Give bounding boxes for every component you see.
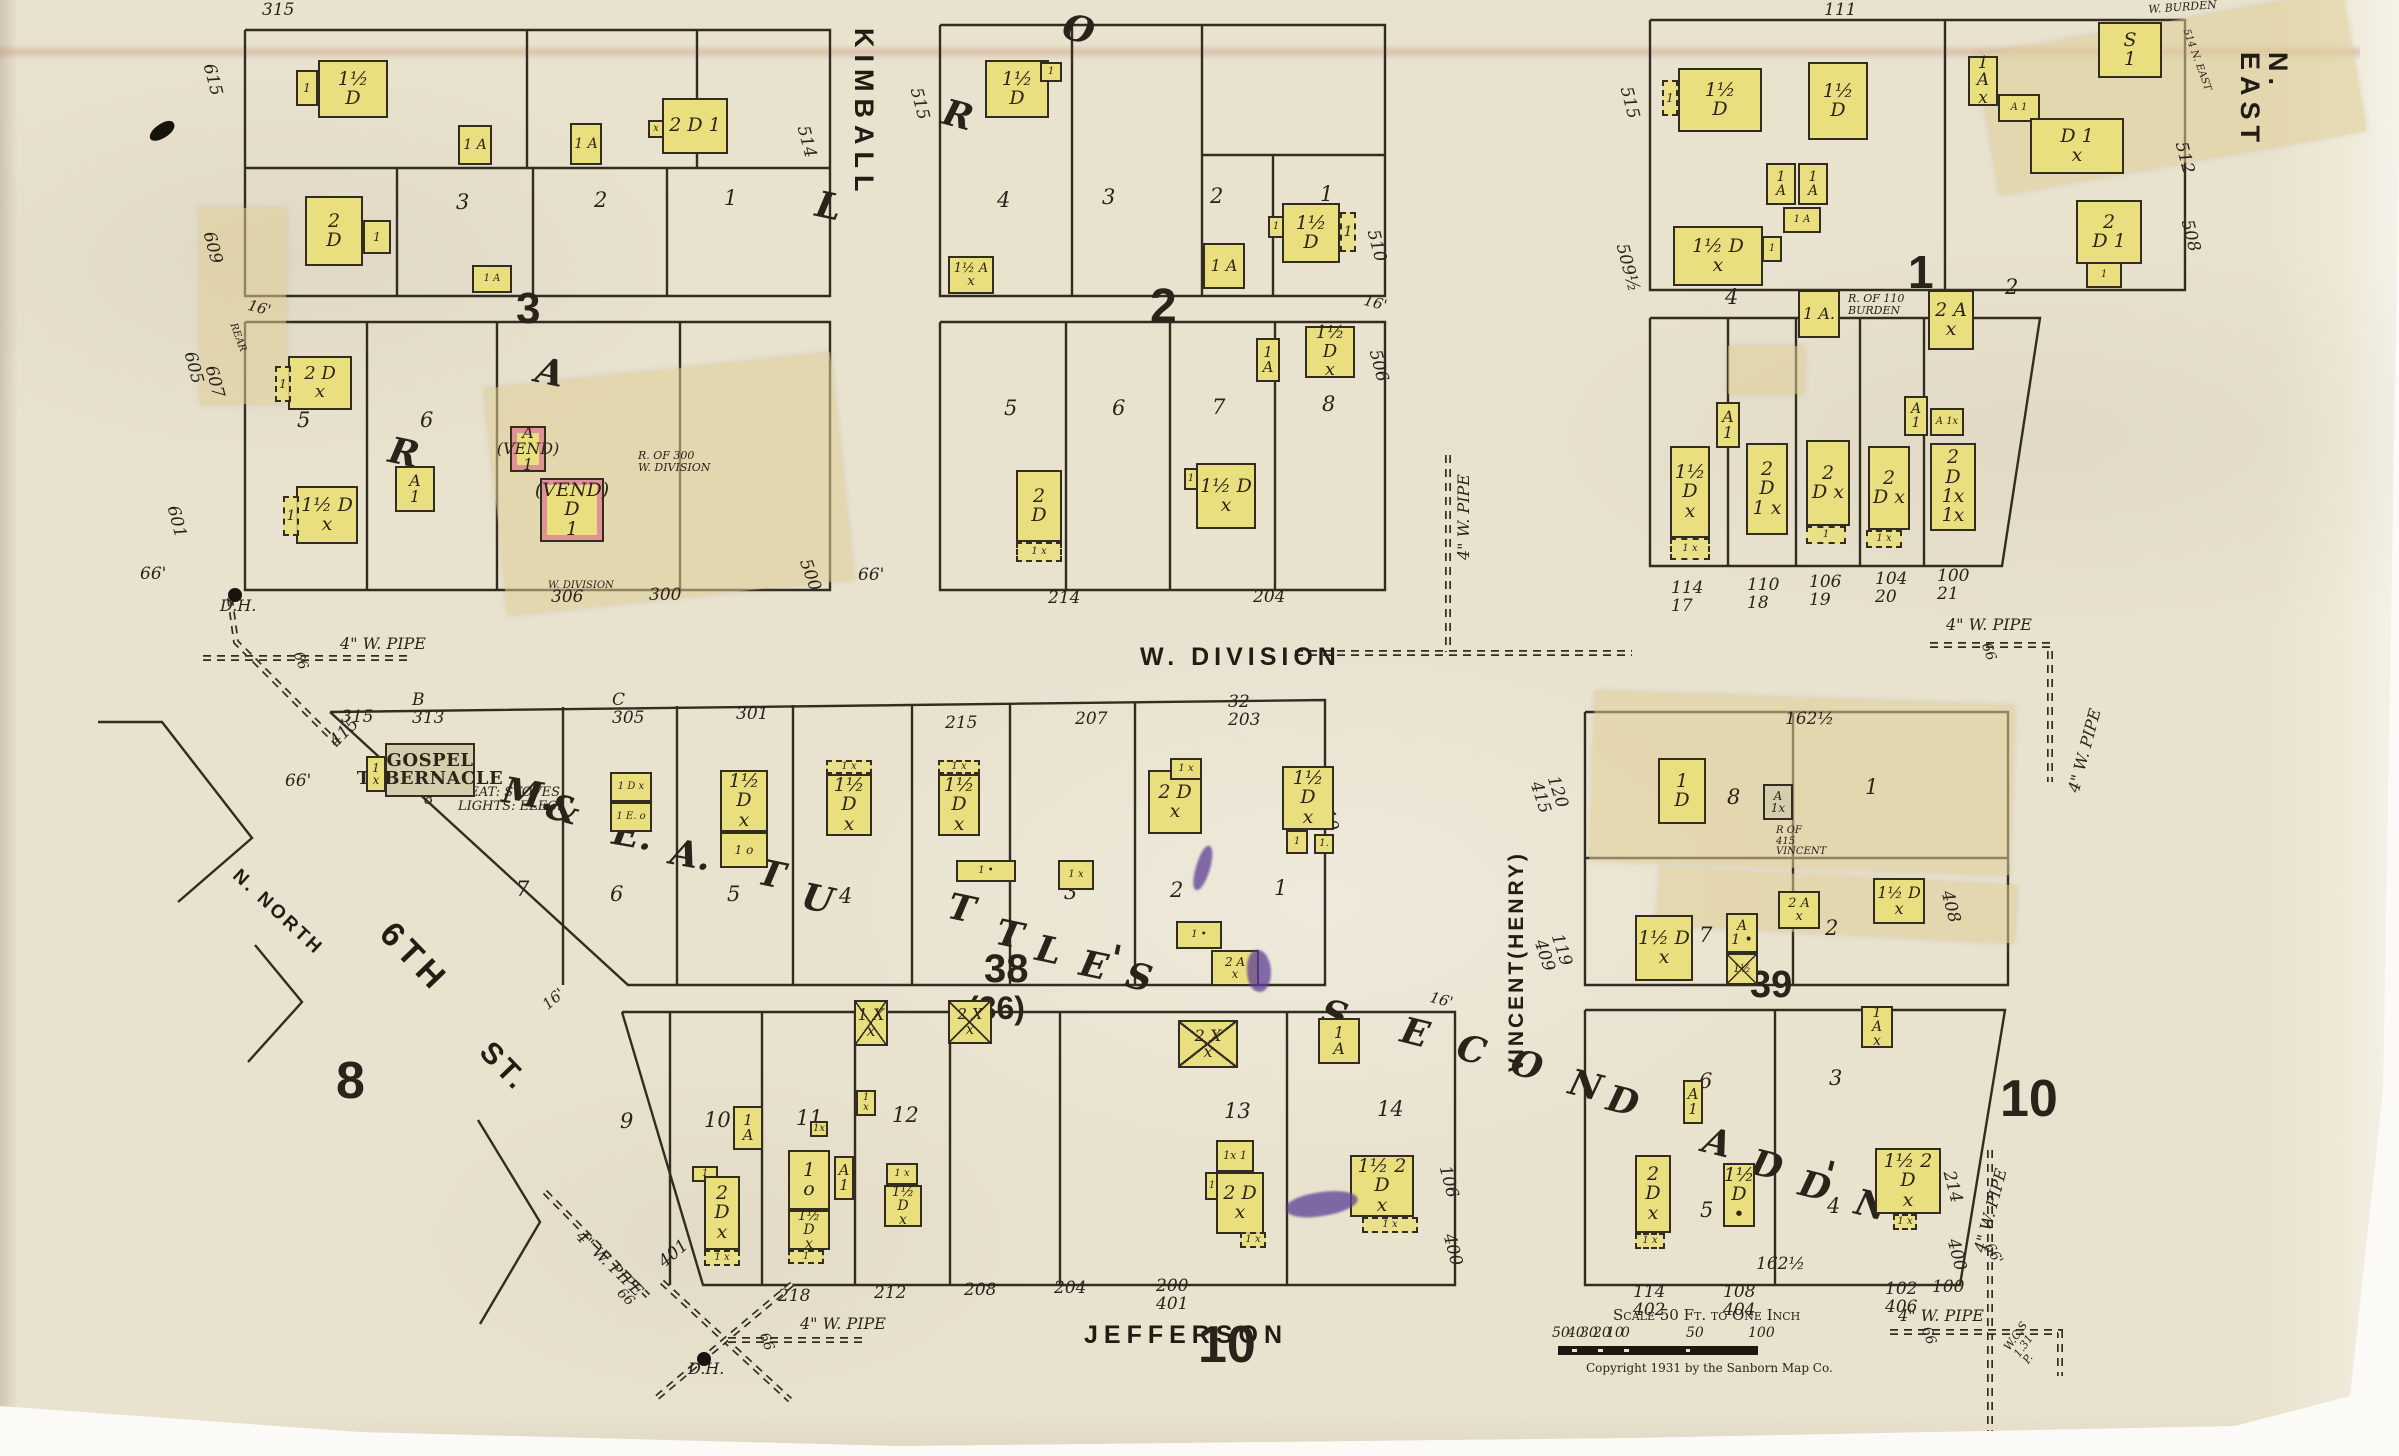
building-footprint: A 1 <box>834 1156 854 1200</box>
lot-number: 4 <box>1827 1195 1840 1217</box>
lot-number: 6 <box>420 409 433 431</box>
scale-bar-tick: 0 <box>1621 1326 1630 1341</box>
lot-number: 8 <box>1322 393 1335 415</box>
water-pipe-line <box>230 598 340 746</box>
address-label: 218 <box>778 1288 810 1306</box>
building-footprint: A 1 • <box>1726 913 1758 953</box>
block-number: 38 <box>984 948 1029 990</box>
building-footprint: 1 o <box>788 1150 830 1210</box>
building-footprint: 1 A x <box>1861 1006 1893 1048</box>
block-number: 10 <box>1198 1318 1256 1373</box>
address-label: 32 203 <box>1228 694 1260 730</box>
address-label: 215 <box>945 715 977 733</box>
lot-number: 2 <box>1170 879 1183 901</box>
building-footprint: 1 x <box>938 760 980 774</box>
building-footprint: 1½ D x <box>1196 463 1256 529</box>
block-outline <box>98 722 252 902</box>
lot-number: 14 <box>1377 1098 1404 1120</box>
building-footprint: 2 D x <box>1868 446 1910 530</box>
block-number: 3 <box>516 286 540 332</box>
address-label: 110 18 <box>1747 577 1779 613</box>
building-footprint: 1 <box>1806 526 1846 544</box>
building-footprint: D 1 x <box>2030 118 2124 174</box>
building-footprint: 1 A <box>1798 163 1828 205</box>
map-annotation: 66' <box>858 567 884 585</box>
scale-bar-title: Scale 50 Ft. to One Inch <box>1613 1308 1800 1324</box>
building-footprint: 1½ D <box>1282 203 1340 263</box>
scale-bar-tick: 100 <box>1748 1326 1775 1341</box>
building-footprint: 1 x <box>1016 542 1062 562</box>
building-footprint: 1 <box>1268 216 1284 238</box>
building-footprint: 1 <box>1762 236 1782 262</box>
building-footprint: 1 x <box>1670 538 1710 560</box>
map-annotation: 66' <box>140 566 166 584</box>
building-footprint: 2 D 1x 1x <box>1930 443 1976 531</box>
building-footprint: 1 A <box>1783 207 1821 233</box>
subdivision-letter: A. <box>667 834 713 878</box>
scale-bar-gap <box>1598 1349 1603 1352</box>
map-paper: KIMBALLN. EASTW. DIVISIONVINCENT(HENRY)J… <box>0 0 2399 1456</box>
address-label: 111 <box>1824 2 1856 20</box>
dh-hydrant-dot <box>228 588 242 602</box>
building-footprint: 1 A <box>458 125 492 165</box>
address-label: 214 <box>1048 590 1080 608</box>
building-footprint: 1 X x <box>854 1000 888 1046</box>
lot-number: 2 <box>2005 276 2018 298</box>
building-footprint: 2 X x <box>948 1000 992 1044</box>
building-footprint: 1 A <box>1318 1018 1360 1064</box>
building-footprint: A 1x <box>1930 408 1964 436</box>
building-footprint: 1 x <box>826 760 872 774</box>
building-footprint: 1 x <box>366 756 386 792</box>
building-footprint: 1 x <box>1362 1217 1418 1233</box>
lot-number: 5 <box>1004 397 1017 419</box>
building-footprint: 1 x <box>1866 530 1902 548</box>
block-outline <box>248 945 302 1062</box>
lot-number: 7 <box>1212 396 1225 418</box>
map-annotation: R. OF 110 BURDEN <box>1848 293 1904 316</box>
address-label: 204 <box>1253 589 1285 607</box>
lot-number: 1 <box>1865 776 1878 798</box>
building-footprint: 2 D <box>305 196 363 266</box>
lot-number: 1 <box>1274 877 1287 899</box>
dh-hydrant-dot <box>697 1352 711 1366</box>
building-footprint: 1½ D x <box>1673 226 1763 286</box>
building-footprint: 1½ D <box>1678 68 1762 132</box>
building-footprint: 1½ D x <box>788 1210 830 1250</box>
building-footprint: 1½ 2 D x <box>1875 1148 1941 1214</box>
lot-number: 3 <box>456 191 469 213</box>
building-footprint: 1½ <box>1726 953 1758 985</box>
building-footprint: 1½ D x <box>1873 878 1925 924</box>
building-footprint: 1 <box>1040 62 1062 82</box>
address-label: 200 401 <box>1156 1278 1188 1314</box>
building-footprint: 1½ A x <box>948 256 994 294</box>
building-footprint: 1 x <box>856 1090 876 1116</box>
building-footprint: 1½ D <box>1808 62 1868 140</box>
scale-bar-gap <box>1686 1349 1690 1352</box>
building-footprint: 1 A <box>733 1106 763 1150</box>
water-pipe-line-core <box>230 598 340 746</box>
address-label: 208 <box>964 1282 996 1300</box>
building-footprint: A 1 <box>395 466 435 512</box>
lot-number: 1 <box>1320 183 1333 205</box>
building-footprint: 1 A x <box>1968 56 1998 106</box>
building-footprint: 1 <box>283 496 299 536</box>
building-footprint: 1 o <box>720 832 768 868</box>
building-footprint: 1½ D x <box>884 1185 922 1227</box>
address-label: 106 19 <box>1809 574 1841 610</box>
building-footprint: 1 <box>363 220 391 254</box>
building-footprint: 1 <box>788 1250 824 1264</box>
building-footprint: 2 D 1 <box>2076 200 2142 264</box>
map-annotation: 4" W. PIPE <box>1946 617 2032 634</box>
building-footprint: 1 • <box>1176 921 1222 949</box>
building-footprint: 1 <box>1286 830 1308 854</box>
building-footprint: 1½ D x <box>1305 326 1355 378</box>
address-label: 204 <box>1054 1280 1086 1298</box>
building-footprint: 1½ D x <box>938 774 980 836</box>
building-footprint: 1 A <box>1256 338 1280 382</box>
lot-number: 5 <box>297 409 310 431</box>
address-label: 162½ <box>1785 711 1834 729</box>
map-annotation: 4" W. PIPE <box>1456 474 1473 560</box>
building-footprint: 2 X x <box>1178 1020 1238 1068</box>
address-label: C 305 <box>612 692 644 728</box>
lot-number: 8 <box>1727 786 1740 808</box>
lot-number: 9 <box>620 1110 633 1132</box>
building-footprint: 1 x <box>886 1163 918 1185</box>
lot-number: 4 <box>839 885 852 907</box>
street-name-w-division: W. DIVISION <box>1140 644 1341 670</box>
street-name-jefferson: JEFFERSON <box>1084 1322 1288 1348</box>
building-footprint: 1 D <box>1658 758 1706 824</box>
building-footprint: 2 D x <box>288 356 352 410</box>
building-footprint: 1 D x <box>610 772 652 802</box>
building-footprint: 1 <box>2086 262 2122 288</box>
lot-number: 12 <box>892 1104 919 1126</box>
street-name-vincent-henry-: VINCENT(HENRY) <box>1506 851 1528 1072</box>
building-footprint: 1 <box>1662 80 1678 116</box>
lot-number: 2 <box>594 189 607 211</box>
building-footprint: 1½ D x <box>1282 766 1334 830</box>
building-footprint: 2 A x <box>1778 891 1820 929</box>
lot-number: 7 <box>1699 924 1712 946</box>
map-annotation: 4" W. PIPE <box>800 1316 886 1333</box>
address-label: 301 <box>736 706 768 724</box>
map-annotation: W. DIVISION <box>548 581 614 592</box>
address-label: 100 21 <box>1937 568 1969 604</box>
building-footprint: 2 A x <box>1928 290 1974 350</box>
block-number: 8 <box>336 1054 365 1109</box>
street-name-kimball: KIMBALL <box>850 28 878 198</box>
building-footprint: 1 E. o <box>610 802 652 832</box>
building-footprint: (VEND) D 1 <box>540 478 604 542</box>
building-footprint: 2 D x <box>704 1176 740 1250</box>
building-footprint: A 1x <box>1763 784 1793 820</box>
building-footprint: 1½ D x <box>1635 915 1693 981</box>
building-footprint: A 1 <box>1716 402 1740 448</box>
building-footprint: 1 • <box>956 860 1016 882</box>
building-footprint: 1x <box>810 1121 828 1137</box>
building-footprint: 2 D x <box>1806 440 1850 526</box>
lot-number: 4 <box>1725 286 1738 308</box>
address-label: 114 17 <box>1671 580 1703 616</box>
building-footprint: 1½ D • <box>1723 1163 1755 1227</box>
lot-number: 3 <box>1102 186 1115 208</box>
building-footprint: 1 x <box>1893 1214 1917 1230</box>
map-annotation: 66' <box>285 773 311 791</box>
building-footprint: 1 <box>275 366 291 402</box>
building-footprint: 2 D <box>1016 470 1062 542</box>
building-footprint: 1½ D <box>318 60 388 118</box>
lot-number: 5 <box>727 883 740 905</box>
building-footprint: 1½ D x <box>826 774 872 836</box>
scale-bar-tick: 50 <box>1686 1326 1704 1341</box>
address-label: 315 <box>262 2 294 20</box>
building-footprint: 1 x <box>1635 1233 1665 1249</box>
map-annotation: 4" W. PIPE <box>1898 1308 1984 1325</box>
sanborn-map-sheet: KIMBALLN. EASTW. DIVISIONVINCENT(HENRY)J… <box>0 0 2399 1456</box>
scale-bar-gap <box>1624 1349 1629 1352</box>
building-footprint: 1 x <box>1170 758 1202 780</box>
address-label: B 313 <box>412 692 444 728</box>
lot-number: 6 <box>1112 397 1125 419</box>
building-footprint: 1 x <box>1058 860 1094 890</box>
building-footprint: 1 <box>296 70 318 106</box>
building-footprint: 1½ D x <box>296 486 358 544</box>
building-footprint: 2 D x <box>1216 1172 1264 1234</box>
address-label: 162½ <box>1756 1256 1805 1274</box>
building-footprint: 1 A <box>1203 243 1245 289</box>
lot-number: 2 <box>1210 185 1223 207</box>
map-annotation: 4" W. PIPE <box>340 636 426 653</box>
building-footprint: 1½ 2 D x <box>1350 1155 1414 1217</box>
building-footprint: 1. <box>1314 834 1334 854</box>
purple-ink-mark <box>1247 950 1271 992</box>
lot-number: 10 <box>704 1109 731 1131</box>
building-footprint: 1 <box>1340 212 1356 252</box>
map-annotation: R. OF 300 W. DIVISION <box>638 450 710 473</box>
building-footprint: A 1 <box>1904 396 1928 436</box>
building-footprint: 2 D 1 x <box>1746 443 1788 535</box>
building-footprint: 1 x <box>704 1250 740 1266</box>
scale-bar-gap <box>1572 1349 1577 1352</box>
building-footprint: 1 A. <box>1798 290 1840 338</box>
building-footprint: 1 x <box>1240 1232 1266 1248</box>
lot-number: 7 <box>516 878 529 900</box>
building-footprint: 1 A <box>472 265 512 293</box>
building-footprint: 1x 1 <box>1216 1140 1254 1172</box>
building-footprint: 1 <box>1184 468 1198 490</box>
street-name-n-east: N. EAST <box>2235 52 2292 159</box>
building-footprint: 1 A <box>570 123 602 165</box>
building-footprint: 1½ D x <box>1670 446 1710 538</box>
address-label: 306 <box>551 589 583 607</box>
map-annotation: R OF 415 VINCENT <box>1776 826 1826 858</box>
lot-number: 6 <box>610 883 623 905</box>
building-footprint: S 1 <box>2098 22 2162 78</box>
building-footprint: 1½ D x <box>720 770 768 832</box>
lot-number: 5 <box>1700 1199 1713 1221</box>
address-label: 104 20 <box>1875 571 1907 607</box>
building-footprint: 1 A <box>1766 163 1796 205</box>
building-footprint: A 1 <box>1683 1080 1703 1124</box>
lot-number: 13 <box>1224 1100 1251 1122</box>
building-footprint: 2 D 1 <box>662 98 728 154</box>
building-footprint: A (VEND) 1 <box>510 426 546 472</box>
block-number: 10 <box>2000 1072 2058 1127</box>
lot-number: 3 <box>1829 1067 1842 1089</box>
tape-patch <box>1728 346 1804 394</box>
building-footprint: 2 D x <box>1635 1155 1671 1233</box>
building-footprint: GOSPEL TABERNACLE <box>385 743 475 797</box>
lot-number: 2 <box>1825 917 1838 939</box>
copyright-notice: Copyright 1931 by the Sanborn Map Co. <box>1586 1362 1833 1375</box>
scale-bar <box>1558 1346 1758 1355</box>
block-number: 2 <box>1150 282 1177 332</box>
block-outline <box>478 1120 540 1324</box>
lot-number: 1 <box>724 187 737 209</box>
lot-number: 4 <box>997 189 1010 211</box>
address-label: 207 <box>1075 711 1107 729</box>
address-label: 300 <box>649 587 681 605</box>
address-label: 212 <box>874 1285 906 1303</box>
address-label: 100 <box>1932 1279 1964 1297</box>
